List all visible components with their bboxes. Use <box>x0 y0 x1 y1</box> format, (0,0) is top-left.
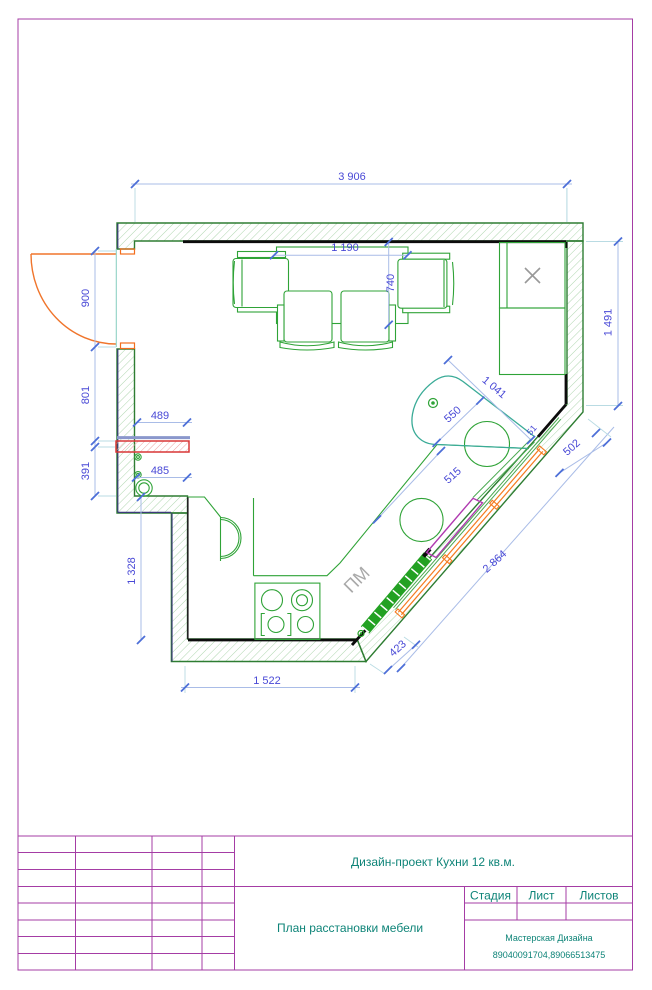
svg-text:1 491: 1 491 <box>603 309 615 337</box>
svg-text:801: 801 <box>80 386 92 404</box>
svg-text:740: 740 <box>385 274 397 292</box>
svg-text:Дизайн-проект Кухни 12 кв.м.: Дизайн-проект Кухни 12 кв.м. <box>351 855 515 869</box>
svg-text:Листов: Листов <box>580 889 619 903</box>
svg-text:ПМ: ПМ <box>340 563 374 597</box>
svg-text:План расстановки мебели: План расстановки мебели <box>277 921 423 935</box>
svg-text:3 906: 3 906 <box>338 171 366 183</box>
svg-text:489: 489 <box>151 410 169 422</box>
svg-text:1 190: 1 190 <box>331 242 359 254</box>
svg-text:2 864: 2 864 <box>481 548 509 575</box>
svg-text:51: 51 <box>525 423 539 437</box>
svg-text:900: 900 <box>80 289 92 307</box>
svg-text:89040091704,89066513475: 89040091704,89066513475 <box>493 950 606 960</box>
svg-text:423: 423 <box>387 638 409 659</box>
svg-text:391: 391 <box>80 462 92 480</box>
svg-text:550: 550 <box>442 404 464 425</box>
svg-text:Лист: Лист <box>528 889 555 903</box>
svg-text:Мастерская Дизайна: Мастерская Дизайна <box>505 933 592 943</box>
svg-text:1 328: 1 328 <box>126 557 138 585</box>
svg-text:502: 502 <box>561 437 583 458</box>
svg-text:515: 515 <box>442 465 464 486</box>
svg-text:Стадия: Стадия <box>470 889 511 903</box>
svg-text:485: 485 <box>151 465 169 477</box>
svg-text:1 522: 1 522 <box>253 675 281 687</box>
